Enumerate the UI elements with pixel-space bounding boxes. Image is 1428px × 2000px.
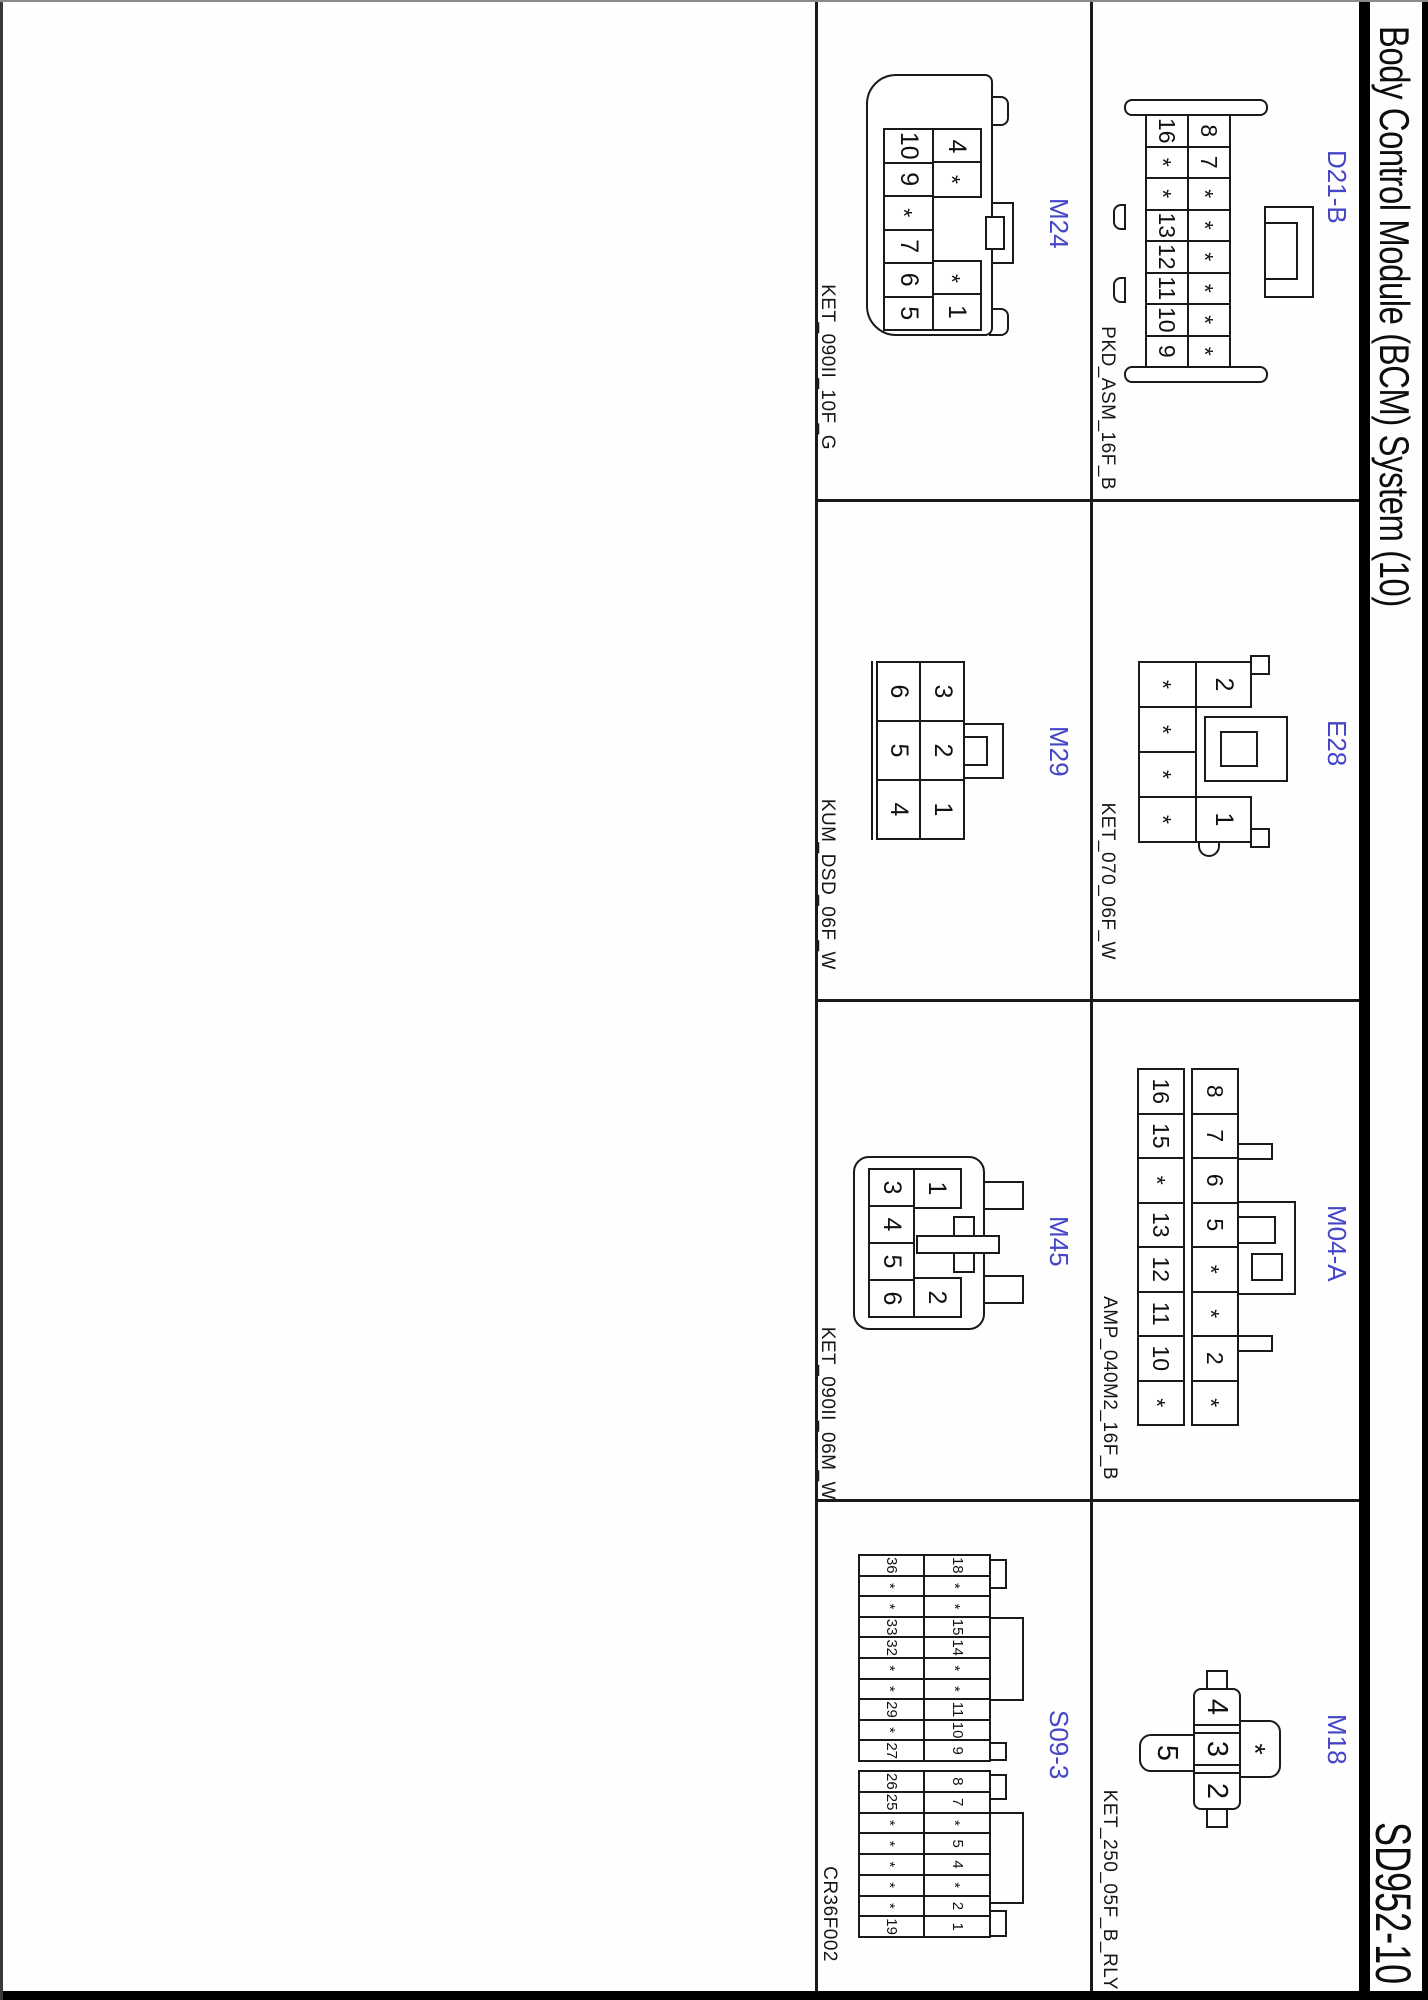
row-divider (1090, 2, 1093, 1991)
mount-tab (1206, 1808, 1228, 1828)
pin-cell: 7 (885, 231, 932, 263)
pin-cell: 5 (878, 722, 920, 779)
pin-cell: 1 (922, 781, 964, 838)
connector-label-e28: E28 (1321, 720, 1352, 766)
pin-cell: * (926, 1876, 990, 1895)
latch-icon-inner (1220, 731, 1258, 767)
pin-cell: * (860, 1834, 924, 1853)
mount-tab (1235, 1143, 1273, 1160)
mount-tab (1235, 1335, 1273, 1352)
pin-cell: * (860, 1577, 924, 1596)
pin-cell: * (1140, 708, 1195, 751)
pin-cell: * (885, 197, 932, 229)
pin-cell: 4 (1193, 1688, 1241, 1726)
pin-cell: * (860, 1721, 924, 1740)
screenshot-root: Body Control Module (BCM) System (10) SD… (0, 0, 1428, 2000)
pin-grid-m24: 109*765 (883, 128, 934, 331)
pin-cell: * (1193, 1293, 1237, 1336)
col-divider-1 (815, 499, 1359, 502)
pin-cell: 3 (922, 663, 964, 720)
pin-cell: * (860, 1814, 924, 1833)
pin-cell: * (1140, 798, 1195, 841)
pin-grid-e28: **** (1138, 661, 1197, 843)
mount-tab (989, 1910, 1007, 1937)
pin-cell: * (931, 260, 982, 297)
part-number-m24: KET_090II_10F_G (816, 140, 838, 450)
latch-icon-inner (985, 216, 1005, 250)
pin-cell: 16 (1147, 116, 1187, 146)
page-edge-top (1422, 0, 1428, 2000)
pin-grid-m29: 321654 (876, 661, 965, 840)
pin-cell: 6 (1193, 1159, 1237, 1202)
side-bump (1198, 841, 1220, 857)
mount-tab (983, 1181, 1024, 1210)
pin-cell: 26 (860, 1772, 924, 1791)
mount-tab (983, 1275, 1024, 1304)
pin-cell: 9 (1147, 337, 1187, 367)
latch-icon-inner (1264, 222, 1298, 280)
pin-cell: * (860, 1855, 924, 1874)
latch-icon-inner (916, 1235, 1000, 1254)
pin-cell: 3 (870, 1170, 913, 1205)
pin-cell: 2 (911, 1277, 962, 1318)
pin-cell: 8 (926, 1772, 990, 1791)
page-title: Body Control Module (BCM) System (10) (1370, 26, 1418, 607)
pin-cell: * (1140, 753, 1195, 796)
pin-cell: 5 (885, 298, 932, 330)
pin-cell: * (1189, 179, 1229, 209)
pin-cell: * (1239, 1720, 1281, 1778)
pin-cell: * (1189, 211, 1229, 241)
latch-icon-inner (1237, 1216, 1276, 1244)
mount-tab (1250, 655, 1270, 675)
pin-cell: 1 (931, 293, 982, 331)
pin-grid-s093-block2: 87*54*212625*****19 (858, 1770, 991, 1938)
pin-cell: 12 (1147, 242, 1187, 272)
latch-icon-inner (963, 736, 988, 766)
pin-cell: 2 (1195, 661, 1252, 708)
col-divider-2 (815, 999, 1359, 1002)
pin-cell: * (1139, 1159, 1183, 1202)
pin-cell: 8 (1193, 1070, 1237, 1113)
pin-cell: 12 (1139, 1248, 1183, 1291)
pin-cell: 19 (860, 1917, 924, 1936)
pin-cell: 10 (885, 130, 932, 162)
pin-cell: * (926, 1814, 990, 1833)
figure-code: CR36F002 (818, 1652, 840, 1962)
pin-cell: 16 (1139, 1070, 1183, 1113)
mount-tab (989, 1559, 1007, 1589)
pin-cell: 15 (1139, 1115, 1183, 1158)
connector-label-m24: M24 (1043, 198, 1074, 249)
pin-cell: 4 (926, 1855, 990, 1874)
page-edge-left (0, 0, 1428, 2)
header-separator (1359, 2, 1370, 1991)
pin-cell: 10 (926, 1721, 990, 1740)
pin-cell: * (926, 1597, 990, 1616)
pin-cell: 2 (1193, 1337, 1237, 1380)
pin-cell: 9 (885, 164, 932, 196)
pin-cell: 6 (870, 1281, 913, 1316)
pin-cell: 9 (926, 1741, 990, 1760)
pin-cell: * (1139, 1382, 1183, 1425)
pin-grid-d21b: 87******16**131211109 (1145, 114, 1231, 368)
part-number-m04a: AMP_040M2_16F_B (1098, 1170, 1120, 1480)
pin-cell: * (1189, 274, 1229, 304)
part-number-d21b: PKD_ASM_16F_B (1096, 180, 1118, 490)
pin-cell: * (926, 1577, 990, 1596)
mount-tab (1250, 828, 1270, 848)
pin-cell: * (1140, 663, 1195, 706)
pin-cell: 15 (926, 1618, 990, 1637)
pin-cell: 10 (1139, 1337, 1183, 1380)
pin-cell: * (860, 1597, 924, 1616)
pin-grid-s093-block1: 18**1514**1110936**3332**29*27 (858, 1554, 991, 1762)
pin-cell: 5 (870, 1244, 913, 1279)
pin-cell: 5 (1193, 1204, 1237, 1247)
pin-cell: 14 (926, 1638, 990, 1657)
pin-grid-m04a-bottom: 1615*13121110* (1137, 1068, 1185, 1426)
pin-cell: * (1189, 305, 1229, 335)
pin-cell: * (860, 1897, 924, 1916)
pin-cell: * (1147, 148, 1187, 178)
pin-cell: 27 (860, 1741, 924, 1760)
mount-tab (989, 1774, 1007, 1800)
pin-cell: 4 (931, 128, 982, 165)
pin-cell: 13 (1139, 1204, 1183, 1247)
pin-grid-m04a-top: 8765**2* (1191, 1068, 1239, 1426)
pin-cell: 11 (1139, 1293, 1183, 1336)
pin-cell: * (926, 1659, 990, 1678)
pin-cell: 2 (1193, 1772, 1241, 1810)
pin-cell: 4 (878, 781, 920, 838)
pin-cell: * (1147, 179, 1187, 209)
pin-cell: 2 (926, 1897, 990, 1916)
pin-cell: 4 (870, 1207, 913, 1242)
pin-cell: * (931, 161, 982, 198)
page-edge-right (0, 1991, 1428, 2000)
pin-cell: * (926, 1680, 990, 1699)
connector-label-d21b: D21-B (1321, 150, 1352, 224)
pin-cell: 10 (1147, 305, 1187, 335)
pin-cell: 13 (1147, 211, 1187, 241)
part-number-m29: KUM_DSD_06F_W (816, 660, 838, 970)
pin-cell: 2 (922, 722, 964, 779)
pin-cell: * (1189, 337, 1229, 367)
pin-cell: 7 (1189, 148, 1229, 178)
pin-cell: 32 (860, 1638, 924, 1657)
col-divider-3 (815, 1499, 1359, 1502)
pin-cell: 6 (878, 663, 920, 720)
pin-cell: 1 (926, 1917, 990, 1936)
pin-cell: 1 (1195, 796, 1252, 843)
pin-cell: 1 (911, 1168, 962, 1209)
pin-grid-m45: 3456 (868, 1168, 915, 1318)
mount-tab (989, 1742, 1007, 1761)
pin-cell: * (1189, 242, 1229, 272)
pin-cell: 6 (885, 264, 932, 296)
page-edge-bottom (0, 0, 3, 2000)
connector-label-m45: M45 (1043, 1216, 1074, 1267)
pin-cell: 18 (926, 1556, 990, 1575)
pin-cell: 29 (860, 1700, 924, 1719)
connector-label-m18: M18 (1321, 1714, 1352, 1765)
pin-cell: 8 (1189, 116, 1229, 146)
part-number-e28: KET_070_06F_W (1096, 650, 1118, 960)
mount-tab (1206, 1670, 1228, 1690)
bracket-icon (989, 1812, 1024, 1904)
connector-label-s093: S09-3 (1043, 1710, 1074, 1779)
pin-cell: * (1193, 1248, 1237, 1291)
pin-cell: 5 (926, 1834, 990, 1853)
pin-cell: * (1193, 1382, 1237, 1425)
housing-end-cap-right (1124, 366, 1268, 383)
pin-cell: * (860, 1876, 924, 1895)
pin-cell: * (860, 1680, 924, 1699)
pin-cell: 5 (1139, 1734, 1195, 1772)
connector-label-m04a: M04-A (1321, 1205, 1352, 1282)
pin-cell: 11 (1147, 274, 1187, 304)
connector-label-m29: M29 (1043, 726, 1074, 777)
pin-cell: 36 (860, 1556, 924, 1575)
relay-cell-inner-lines (1195, 1732, 1239, 1766)
page-code: SD952-10 (1364, 1822, 1422, 1984)
pin-cell: 25 (860, 1793, 924, 1812)
pin-cell: 33 (860, 1618, 924, 1637)
part-number-m18: KET_250_05F_B_RLY (1098, 1680, 1120, 1990)
housing-base-line (871, 661, 873, 840)
latch-icon-inner (1251, 1253, 1283, 1281)
pin-cell: * (860, 1659, 924, 1678)
diagram-page: Body Control Module (BCM) System (10) SD… (0, 0, 1428, 2000)
part-number-m45: KET_090II_06M_W (816, 1190, 838, 1500)
pin-cell: 7 (926, 1793, 990, 1812)
pin-cell: 11 (926, 1700, 990, 1719)
pin-cell: 7 (1193, 1115, 1237, 1158)
bracket-icon (989, 1617, 1024, 1701)
